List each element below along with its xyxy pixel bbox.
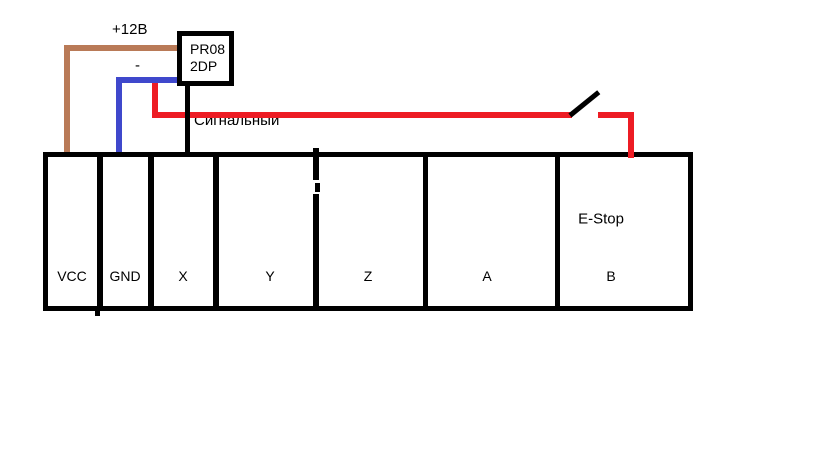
stray-mark bbox=[95, 311, 100, 316]
divider-y-z-bottom bbox=[313, 194, 319, 311]
terminal-label-vcc: VCC bbox=[57, 268, 87, 284]
divider-gnd-x bbox=[148, 152, 154, 311]
divider-y-z-middle bbox=[315, 183, 320, 192]
terminal-strip bbox=[43, 152, 693, 311]
ground-wire-label: - bbox=[135, 57, 140, 74]
power-wire-horizontal bbox=[64, 45, 177, 51]
terminal-label-gnd: GND bbox=[109, 268, 140, 284]
signal-wire-to-estop-terminal bbox=[628, 112, 634, 158]
sensor-name-line1: PR08 bbox=[190, 41, 229, 58]
power-wire-label: +12В bbox=[112, 21, 147, 38]
terminal-label-z: Z bbox=[364, 268, 373, 284]
signal-wire-run bbox=[152, 112, 572, 118]
divider-x-y bbox=[213, 152, 219, 311]
power-wire-vertical bbox=[64, 45, 70, 152]
divider-vcc-gnd bbox=[97, 152, 103, 311]
terminal-label-b: B bbox=[606, 268, 615, 284]
sensor-box: PR08 2DP bbox=[177, 31, 234, 86]
estop-switch-blade bbox=[568, 90, 600, 117]
ground-wire-vertical bbox=[116, 77, 122, 152]
divider-a-b bbox=[555, 152, 560, 311]
sensor-output-wire bbox=[185, 84, 190, 152]
divider-y-z-top bbox=[313, 148, 319, 180]
divider-z-a bbox=[423, 152, 428, 311]
wiring-diagram-canvas: +12В - Сигнальный PR08 2DP VCC GND X Y Z… bbox=[0, 0, 819, 460]
ground-wire-horizontal bbox=[116, 77, 177, 83]
terminal-label-x: X bbox=[178, 268, 187, 284]
estop-terminal-label: E-Stop bbox=[578, 211, 624, 228]
terminal-label-y: Y bbox=[265, 268, 274, 284]
terminal-label-a: A bbox=[482, 268, 491, 284]
sensor-name-line2: 2DP bbox=[190, 58, 229, 75]
